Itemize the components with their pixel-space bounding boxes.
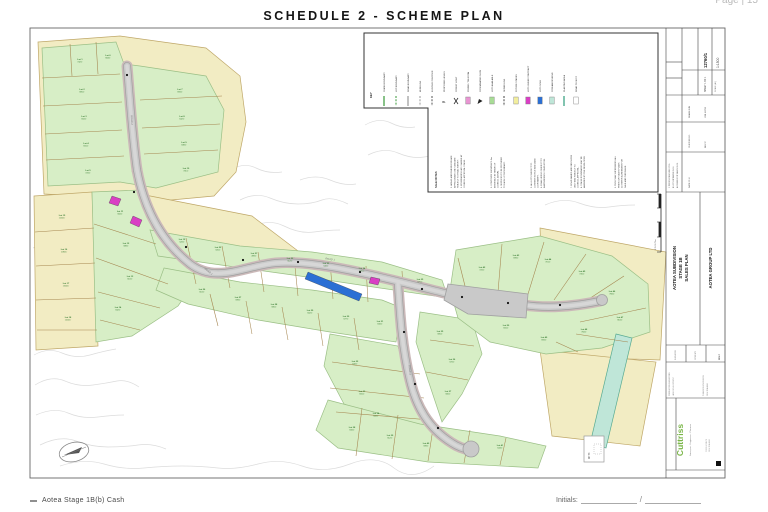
lot-label: Lot 47 — [617, 316, 624, 319]
lot-area-label: 810m² — [617, 319, 623, 322]
legend-note-line: 7. ROAD NAMES ARE INDICATIVE — [570, 154, 573, 188]
lot-area-label: 698m² — [513, 257, 519, 260]
lot-area-label: 1180m² — [61, 251, 68, 254]
manhole-dot — [126, 74, 128, 76]
titleblock-text: NEW ZEALAND — [708, 438, 711, 452]
legend-note-line: 9. THIS PLAN SUPERSEDES ALL — [614, 155, 617, 188]
lot-label: Lot 32 — [352, 360, 359, 363]
culdesac-bulb — [463, 441, 479, 457]
lot-area-label: 577m² — [343, 318, 349, 321]
lot-area-label: 1250m² — [59, 217, 66, 220]
parcel-beige — [34, 192, 98, 350]
footer-caption: Aotea Stage 1B(b) Cash — [42, 497, 124, 504]
lot-area-label: 642m² — [179, 118, 185, 121]
lot-area-label: 602m² — [307, 312, 313, 315]
lot-area-label: 570m² — [449, 361, 455, 364]
lot-label: Lot 44 — [545, 258, 552, 261]
titleblock-text: AOTEA GROUP LTD — [708, 248, 713, 289]
legend-item-label: STREAM RESERVE — [551, 72, 554, 92]
scale-fill — [659, 222, 661, 237]
lot-label: Lot 15 — [59, 214, 66, 217]
legend-swatch — [466, 97, 470, 104]
titleblock-text: SALES PLAN — [684, 254, 689, 281]
lot-label: Lot 20 — [215, 246, 222, 249]
initials-label: Initials: — [556, 497, 578, 504]
lot-label: Lot 19 — [179, 238, 186, 241]
titleblock-text: SURVEYED — [675, 349, 677, 360]
lot-area-label: 655m² — [83, 145, 89, 148]
legend-item-label: PROPOSED LEVELS — [444, 71, 446, 92]
lot-label: Lot 40 — [423, 442, 430, 445]
legend-note-line: AMENDED BY THE DEVELOPER. — [583, 155, 586, 188]
legend-item-label: ROAD BOUNDARY — [407, 73, 410, 92]
lot-area-label: 586m² — [271, 306, 277, 309]
lot-label: Lot 11 — [117, 210, 124, 213]
legend-notes-title: SALE NOTES — [434, 171, 438, 188]
legend-note-line: COUNCIL APPROVAL. — [577, 166, 580, 188]
lot-area-label: 760m² — [581, 331, 587, 334]
legend-note-line: APPROXIMATE ONLY AND ARE — [453, 157, 456, 188]
lot-area-label: 1320m² — [63, 285, 70, 288]
legend-note-line: SUBJECT TO FINAL SURVEY. — [457, 159, 460, 188]
titleblock-text: C PRICES REMOVED 07.16 — [669, 164, 671, 188]
lot-area-label: 650m² — [81, 118, 87, 121]
lot-area-label: 638m² — [181, 144, 187, 147]
lot-label: Lot 42 — [479, 266, 486, 269]
titleblock-text: 1:1500 — [716, 58, 720, 68]
legend-swatch — [550, 97, 554, 104]
lot-area-label: 690m² — [177, 91, 183, 94]
legend-note-line: 5. ALL LOTS SUBJECT TO — [530, 162, 533, 188]
lot-label: Lot 14 — [115, 306, 122, 309]
lot-area-label: 1410m² — [65, 319, 72, 322]
lot-area-label: 512m² — [287, 260, 293, 263]
legend-note-line: 1. AREAS AND DIMENSIONS ARE — [450, 155, 453, 188]
legend-note-line: 6. FINAL LEVELS SUBJECT TO — [540, 158, 543, 188]
legend-note-line: EARTHWORKS COMPLETION. — [543, 158, 546, 188]
lot-label: Lot 41 — [497, 444, 504, 447]
titleblock-text: DATE 05.16 — [688, 176, 691, 188]
lot-area-label: 690m² — [541, 339, 547, 342]
titleblock-text: SCALE (A1) — [714, 81, 717, 92]
lot-area-label: 612m² — [387, 437, 393, 440]
lot-label: Lot 9 — [181, 141, 187, 144]
legend-note-line: SALE AND PURCHASE. — [624, 165, 627, 188]
titleblock-text: CONSULTING SURVEYORS — [669, 372, 671, 396]
lot-area-label: 560m² — [117, 213, 123, 216]
lot-area-label: 630m² — [377, 323, 383, 326]
legend-swatch — [526, 97, 530, 104]
manhole-dot — [414, 383, 416, 385]
legend-swatch — [490, 97, 494, 104]
titleblock-text: REV C — [719, 353, 721, 360]
legend-item-label: SEWER LINE — [504, 78, 506, 92]
legend-note-line: COVENANTS. — [537, 174, 540, 188]
stamp-label: DP 56 — [589, 452, 591, 459]
titleblock-text: DRAWN RJM — [688, 106, 691, 118]
scale-label: 0 25 50 75m — [655, 239, 657, 250]
lot-label: Lot 46 — [609, 290, 616, 293]
initials-row: Initials: / — [556, 495, 701, 504]
legend-note-line: TO EACH LOT BOUNDARY. — [503, 161, 506, 188]
lot-area-label: 598m² — [235, 299, 241, 302]
legend-note-line: ONLY AND SUBJECT TO — [573, 164, 576, 188]
titleblock-text: REV C — [705, 141, 707, 148]
lot-label: Lot 5 — [85, 169, 91, 172]
lot-area-label: 498m² — [251, 255, 257, 258]
lot-label: Lot 48 — [581, 328, 588, 331]
manhole-dot — [242, 259, 244, 261]
lot-label: Lot 37 — [445, 390, 452, 393]
legend-item-label: FUTURE STAGES — [515, 74, 518, 92]
lot-label: Lot 21 — [251, 252, 258, 255]
lot-label: Lot 8 — [179, 115, 185, 118]
lot-label: Lot 28 — [271, 303, 278, 306]
legend-note-line: COUNCIL DATUM. — [497, 170, 500, 188]
lot-label: Lot 6 — [105, 54, 111, 57]
legend-item-label: STREET LIGHT — [456, 76, 458, 92]
lot-label: Lot 43 — [513, 254, 520, 257]
legend-item-label: LOTS SOLD — [540, 80, 542, 92]
lot-label: Lot 13 — [127, 275, 134, 278]
lot-area-label: 655m² — [503, 327, 509, 330]
legend-swatch — [514, 97, 518, 104]
legend-item-label: ROAD TO VEST — [575, 75, 578, 92]
lot-label: Lot 27 — [235, 296, 242, 299]
lot-label: Lot 49 — [541, 336, 548, 339]
lot-label: Lot 38 — [349, 426, 356, 429]
lot-area-label: 600m² — [373, 415, 379, 418]
lot-label: Lot 50 — [503, 324, 510, 327]
legend-note-line: PREVIOUS SALES PLANS. — [617, 162, 620, 188]
titleblock-text: CHECKED DG — [689, 134, 691, 148]
lot-area-label: 644m² — [497, 447, 503, 450]
legend-note-line: 2. BOUNDARIES MAY CHANGE AT — [460, 154, 463, 188]
titleblock-text: Cuttriss — [675, 424, 685, 456]
legend-item-label: LOTS UNDER CONTRACT — [527, 65, 530, 92]
titleblock-text: A ISSUED FOR SALES 03.16 — [676, 163, 679, 188]
road-name-label: ROAD 2 — [130, 115, 135, 125]
lot-label: Lot 35 — [437, 330, 444, 333]
legend-swatch — [538, 97, 542, 104]
lot-label: Lot 34 — [373, 412, 380, 415]
scheme-plan-svg: Lot 1742m²Lot 2685m²Lot 3650m²Lot 4655m²… — [0, 0, 768, 512]
footer-mark — [30, 500, 37, 502]
manhole-dot — [437, 427, 439, 429]
lot-area-label: 742m² — [77, 61, 83, 64]
legend-heading: KEY — [369, 92, 373, 98]
legend-item-label: POWER / TELECOM — [468, 72, 470, 92]
lot-label: Lot 18 — [65, 316, 72, 319]
lot-label: Lot 2 — [79, 88, 85, 91]
legend-note-line: INTERVALS IN TERMS OF — [493, 162, 496, 188]
lot-area-label: 780m² — [609, 293, 615, 296]
titleblock-text: STAGE 1B — [678, 257, 683, 278]
lot-area-label: 632m² — [115, 309, 121, 312]
lot-label: Lot 12 — [123, 242, 130, 245]
manhole-dot — [559, 304, 561, 306]
lot-label: Lot 36 — [449, 358, 456, 361]
manhole-dot — [403, 331, 405, 333]
legend-note-line: COUNCIL APPROVAL STAGE. — [463, 159, 466, 188]
lot-label: Lot 7 — [177, 88, 183, 91]
legend-item-label: LOT BOUNDARY — [395, 75, 398, 92]
titleblock-text: Surveyors · Engineers · Planners — [689, 423, 692, 456]
titleblock-text: B LOTS UPDATED 05.16 — [672, 167, 675, 188]
titleblock-text: LAND DEVELOPMENT — [672, 376, 675, 396]
titleblock-text: SHEET 1 OF 1 — [705, 76, 707, 92]
legend-item-label: LOTS AVAILABLE — [491, 74, 494, 92]
scale-fill — [659, 194, 661, 208]
manhole-dot — [507, 302, 509, 304]
lot-area-label: 575m² — [417, 281, 423, 284]
lot-area-label: 588m² — [123, 245, 129, 248]
titleblock-text: PLANNERS ENGINEERS — [702, 374, 705, 396]
lot-area-label: 540m² — [323, 265, 329, 268]
legend-swatch — [574, 97, 578, 104]
manhole-dot — [133, 191, 135, 193]
lot-label: Lot 26 — [199, 288, 206, 291]
lot-area-label: 655m² — [359, 393, 365, 396]
lot-label: Lot 33 — [359, 390, 366, 393]
lot-area-label: 566m² — [445, 393, 451, 396]
lot-label: Lot 10 — [183, 167, 190, 170]
legend-item-label: STAGE BOUNDARY — [383, 72, 386, 92]
manhole-dot — [185, 246, 187, 248]
culdesac-bulb — [597, 295, 608, 306]
document-page: Page | 15 SCHEDULE 2 - SCHEME PLAN Lot 1… — [0, 0, 768, 512]
initials-separator: / — [640, 495, 642, 504]
lot-area-label: 720m² — [479, 269, 485, 272]
lot-label: Lot 17 — [63, 282, 70, 285]
legend-note-line: 3. CONTOURS SHOWN AT 1.0m — [490, 157, 493, 188]
legend-note-line: 8. STAGE BOUNDARIES MAY BE — [580, 156, 583, 188]
lot-area-label: 610m² — [127, 278, 133, 281]
lot-area-label: 715m² — [545, 261, 551, 264]
manhole-dot — [421, 288, 423, 290]
lot-label: Lot 24 — [359, 267, 366, 270]
legend-note-line: 4. SERVICES TO BE PROVIDED — [501, 157, 503, 188]
lot-label: Lot 29 — [307, 309, 314, 312]
lot-label: Lot 39 — [387, 434, 394, 437]
lot-area-label: 701m² — [183, 170, 189, 173]
lot-area-label: 610m² — [199, 291, 205, 294]
legend-item-label: KERB LINE — [420, 80, 422, 92]
lot-label: Lot 3 — [81, 115, 87, 118]
legend-note-line: 10. REFER AGREEMENT FOR — [621, 158, 624, 188]
lot-area-label: 720m² — [85, 172, 91, 175]
titleblock-mark — [716, 461, 721, 466]
initials-line-2[interactable] — [645, 497, 701, 504]
lot-label: Lot 22 — [287, 257, 294, 260]
titleblock-text: NEW ZEALAND — [706, 382, 709, 396]
legend-item-label: STORMWATER FLOW — [479, 69, 482, 92]
lot-area-label: 525m² — [359, 270, 365, 273]
lot-area-label: 585m² — [437, 333, 443, 336]
legend-item-label: EXISTING CONTOUR — [432, 70, 434, 92]
lot-area-label: 505m² — [215, 249, 221, 252]
legend-item-label: PLANTING AREA — [563, 74, 566, 92]
manhole-dot — [461, 296, 463, 298]
lot-area-label: 630m² — [349, 429, 355, 432]
lot-area-label: 745m² — [579, 273, 585, 276]
legend-note-line: CONSENT NOTICE AND LAND — [533, 158, 536, 188]
lot-area-label: 598m² — [423, 445, 429, 448]
lot-area-label: 804m² — [105, 57, 111, 60]
lot-label: Lot 4 — [83, 142, 89, 145]
lot-label: Lot 45 — [579, 270, 586, 273]
lot-area-label: 685m² — [79, 91, 85, 94]
lot-label: Lot 30 — [343, 315, 350, 318]
titleblock-text: AOTEA SUBDIVISION — [672, 246, 677, 290]
lot-area-label: 640m² — [352, 363, 358, 366]
titleblock-text: JOB 12760 — [705, 106, 707, 118]
titleblock-text: 12760/1 — [703, 52, 708, 68]
initials-line-1[interactable] — [581, 497, 637, 504]
lot-label: Lot 23 — [323, 262, 330, 265]
lot-label: Lot 1 — [77, 58, 83, 61]
manhole-dot — [297, 261, 299, 263]
lot-area-label: 520m² — [179, 241, 185, 244]
titleblock-text: 12760-SP1 — [695, 351, 697, 360]
lot-label: Lot 25 — [417, 278, 424, 281]
legend-swatch: RL — [442, 101, 446, 104]
lot-label: Lot 16 — [61, 248, 68, 251]
lot-label: Lot 31 — [377, 320, 384, 323]
titleblock-text: CONSULTANTS — [705, 438, 708, 452]
